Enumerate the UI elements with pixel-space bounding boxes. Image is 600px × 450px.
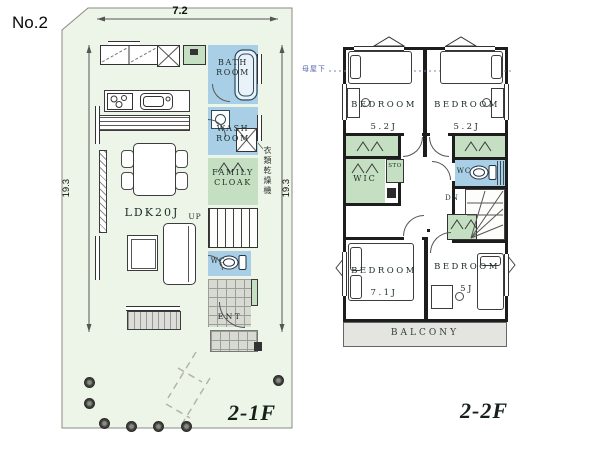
bedroom-tl-label: BEDROOM 5.2J (344, 90, 424, 143)
wash-room-label: WASH ROOM (208, 124, 258, 145)
wc-shelf-stripes (497, 161, 505, 185)
window-icon (354, 46, 404, 51)
bedroom-br-size: 5J (427, 284, 507, 295)
pillow (350, 55, 361, 79)
shrub-icon (181, 421, 192, 432)
bedroom-tr-size: 5.2J (427, 122, 507, 133)
dim-site-width: 7.2 (158, 4, 202, 18)
shrub-icon (99, 418, 110, 429)
counter-bar (96, 115, 190, 131)
porch-tiles (210, 330, 258, 352)
gable-icon (374, 37, 476, 46)
shaft-box (387, 188, 396, 198)
shrub-icon (84, 398, 95, 409)
hanger-icon (449, 217, 479, 231)
chair-icon (175, 172, 188, 190)
hanger-icon (350, 161, 380, 175)
bedroom-bl-name: BEDROOM (344, 266, 424, 277)
bedroom-tl-size: 5.2J (344, 122, 424, 133)
plan-number: No.2 (12, 12, 72, 34)
window-icon (95, 236, 100, 280)
sofa-back-line (188, 226, 189, 282)
dim-site-depth-right: 19.3 (281, 173, 293, 203)
postbox (254, 342, 262, 351)
floor2-label: 2-2F (460, 398, 508, 424)
kitchen-cabinets-icon (100, 45, 158, 65)
bedroom-br-name: BEDROOM (427, 262, 507, 273)
shrub-icon (273, 375, 284, 386)
wc-2f-label: WC (455, 167, 473, 176)
dining-table (133, 143, 176, 196)
shrub-icon (153, 421, 164, 432)
wic-label: WIC (346, 174, 384, 184)
floorplan-canvas: No.2 7.2 19.3 19.3 (0, 0, 600, 450)
shrub-icon (126, 421, 137, 432)
coffee-table-inner (131, 239, 156, 269)
pantry-item (190, 49, 198, 55)
chair-icon (175, 150, 188, 168)
bedroom-tr-name: BEDROOM (427, 100, 507, 111)
tv-board (99, 150, 107, 233)
bedroom-bl-size: 7.1J (344, 288, 424, 299)
window-icon (95, 106, 100, 144)
bath-room-label: BATH ROOM (208, 58, 258, 79)
shrub-icon (84, 377, 95, 388)
stairs-2f-treads (465, 189, 505, 240)
stairs-1f (208, 208, 258, 248)
stairs-down-label: DN (442, 194, 462, 203)
eave-note: 母屋下 (299, 65, 329, 74)
storage-label: STO (385, 163, 405, 170)
balcony-label: BALCONY (343, 328, 507, 340)
stairs-up-label: UP (186, 212, 204, 222)
sink-icon (140, 93, 173, 110)
dryer-note: 衣類乾燥機 (259, 138, 272, 204)
shoe-cabinet (251, 279, 258, 306)
stove-icon (107, 93, 133, 110)
window-icon (108, 41, 140, 46)
family-cloak-label: FAMILY CLOAK (208, 168, 258, 189)
sofa (163, 223, 196, 285)
entrance-label: ENT (212, 312, 248, 322)
refrigerator-icon (157, 45, 180, 67)
pantry-box (183, 45, 206, 65)
bedroom-tr-label: BEDROOM 5.2J (427, 90, 507, 143)
bedroom-br-label: BEDROOM 5J (427, 252, 507, 305)
bedroom-tl-name: BEDROOM (344, 100, 424, 111)
terrace-step (127, 311, 181, 330)
window-icon (445, 46, 495, 51)
wc-1f-label: WC (209, 257, 227, 266)
ldk-label: LDK20J (112, 206, 192, 220)
bedroom-bl-label: BEDROOM 7.1J (344, 256, 424, 309)
dim-site-depth-left: 19.3 (61, 173, 73, 203)
window-icon (126, 306, 180, 311)
floor1-label: 2-1F (228, 400, 276, 426)
pillow (491, 55, 502, 79)
